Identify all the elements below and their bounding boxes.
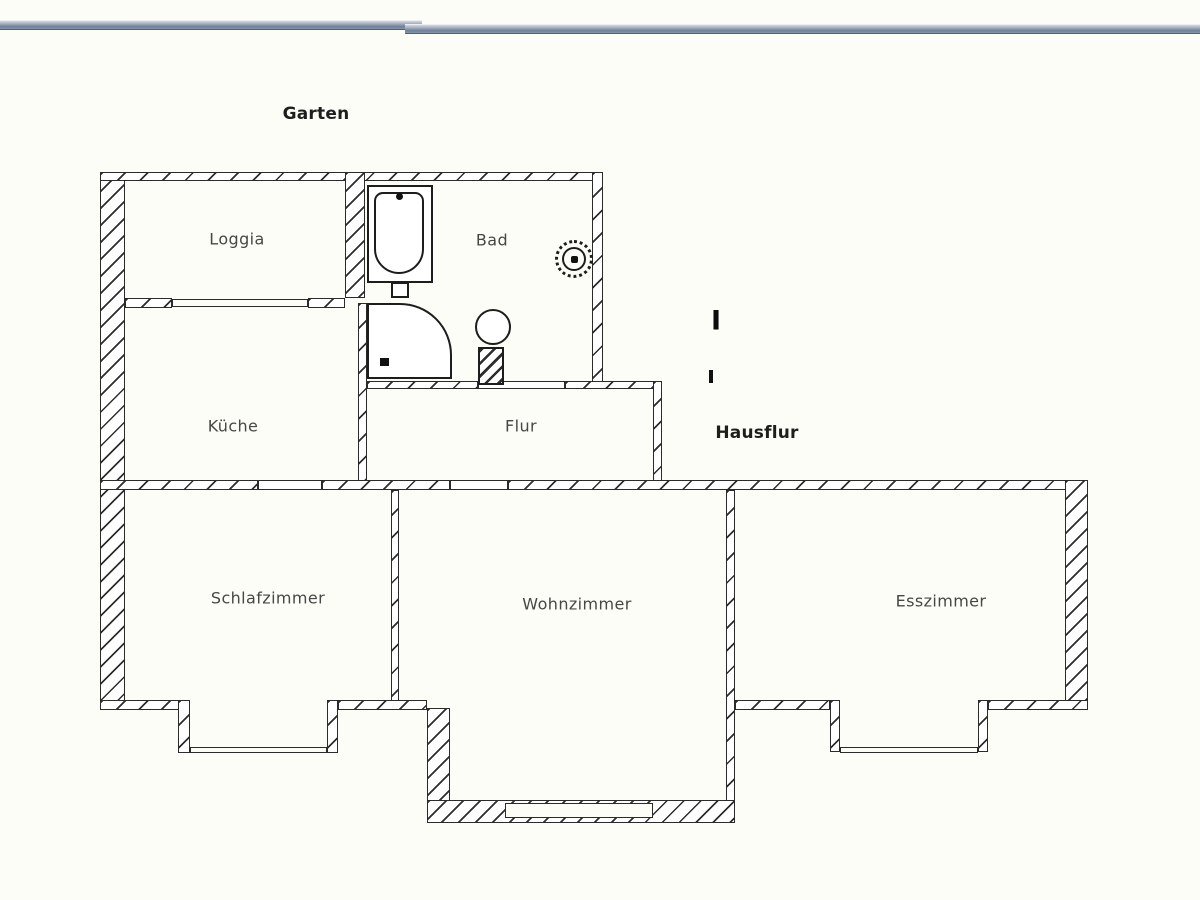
wall-flur-top-b bbox=[565, 381, 662, 389]
room-label-esszimmer: Esszimmer bbox=[896, 592, 987, 611]
window-wohnzimmer bbox=[505, 803, 653, 818]
toilet-icon bbox=[475, 309, 511, 345]
wall-kueche-right bbox=[358, 303, 367, 490]
wall-flur-top-a bbox=[367, 381, 478, 389]
wall-main-c bbox=[508, 480, 1088, 490]
wall-ess-bottom-right bbox=[988, 700, 1088, 710]
door-opening-schlafzimmer bbox=[258, 480, 322, 490]
floor-drain-center bbox=[571, 256, 578, 263]
wall-bottom-mid bbox=[338, 700, 427, 710]
wall-ess-bay-right bbox=[978, 700, 988, 752]
door-opening-wohnzimmer bbox=[450, 480, 508, 490]
window-loggia-kueche bbox=[172, 299, 308, 307]
label-hausflur: Hausflur bbox=[715, 423, 798, 443]
bathtub-icon bbox=[367, 185, 433, 283]
wall-ess-bay-left bbox=[830, 700, 840, 752]
sink-icon bbox=[391, 282, 409, 298]
shower-drain bbox=[380, 358, 389, 366]
toilet-cistern bbox=[478, 347, 504, 385]
floorplan-page: Garten Hausflur I Loggia Bad Küche Flur … bbox=[0, 0, 1200, 900]
wall-wohn-ess bbox=[726, 490, 735, 823]
wall-outer-left bbox=[100, 172, 125, 710]
wall-bad-right bbox=[592, 172, 603, 386]
window-esszimmer-bay bbox=[840, 747, 978, 753]
room-label-bad: Bad bbox=[476, 231, 508, 250]
entrance-marker: I bbox=[711, 306, 721, 337]
wall-outer-right bbox=[1065, 480, 1088, 710]
floor-drain-icon bbox=[555, 240, 593, 278]
room-label-schlafzimmer: Schlafzimmer bbox=[211, 589, 325, 608]
room-label-kueche: Küche bbox=[208, 417, 259, 436]
wall-main-b bbox=[322, 480, 450, 490]
bathtub-drain bbox=[396, 193, 403, 200]
wall-main-a bbox=[100, 480, 258, 490]
wall-loggia-bad bbox=[345, 172, 365, 298]
wall-schlaf-bay-left bbox=[178, 700, 190, 753]
bathtub-basin bbox=[374, 192, 424, 274]
wall-schlaf-bay-right bbox=[327, 700, 338, 753]
shower-icon bbox=[367, 303, 452, 379]
wall-loggia-bottom-right bbox=[308, 298, 345, 308]
room-label-loggia: Loggia bbox=[209, 230, 264, 249]
wall-loggia-bottom-left bbox=[125, 298, 172, 308]
floor-plan: Garten Hausflur I Loggia Bad Küche Flur … bbox=[0, 0, 1200, 900]
wall-flur-right bbox=[653, 381, 662, 490]
wall-schlaf-bottom-left bbox=[100, 700, 180, 710]
wall-ess-bottom-left bbox=[735, 700, 830, 710]
label-garten: Garten bbox=[283, 104, 350, 124]
room-label-flur: Flur bbox=[505, 417, 537, 436]
door-frame-stub bbox=[709, 370, 713, 383]
wall-schlaf-wohn bbox=[391, 490, 399, 702]
window-schlafzimmer-bay bbox=[190, 747, 327, 753]
room-label-wohnzimmer: Wohnzimmer bbox=[522, 595, 631, 614]
